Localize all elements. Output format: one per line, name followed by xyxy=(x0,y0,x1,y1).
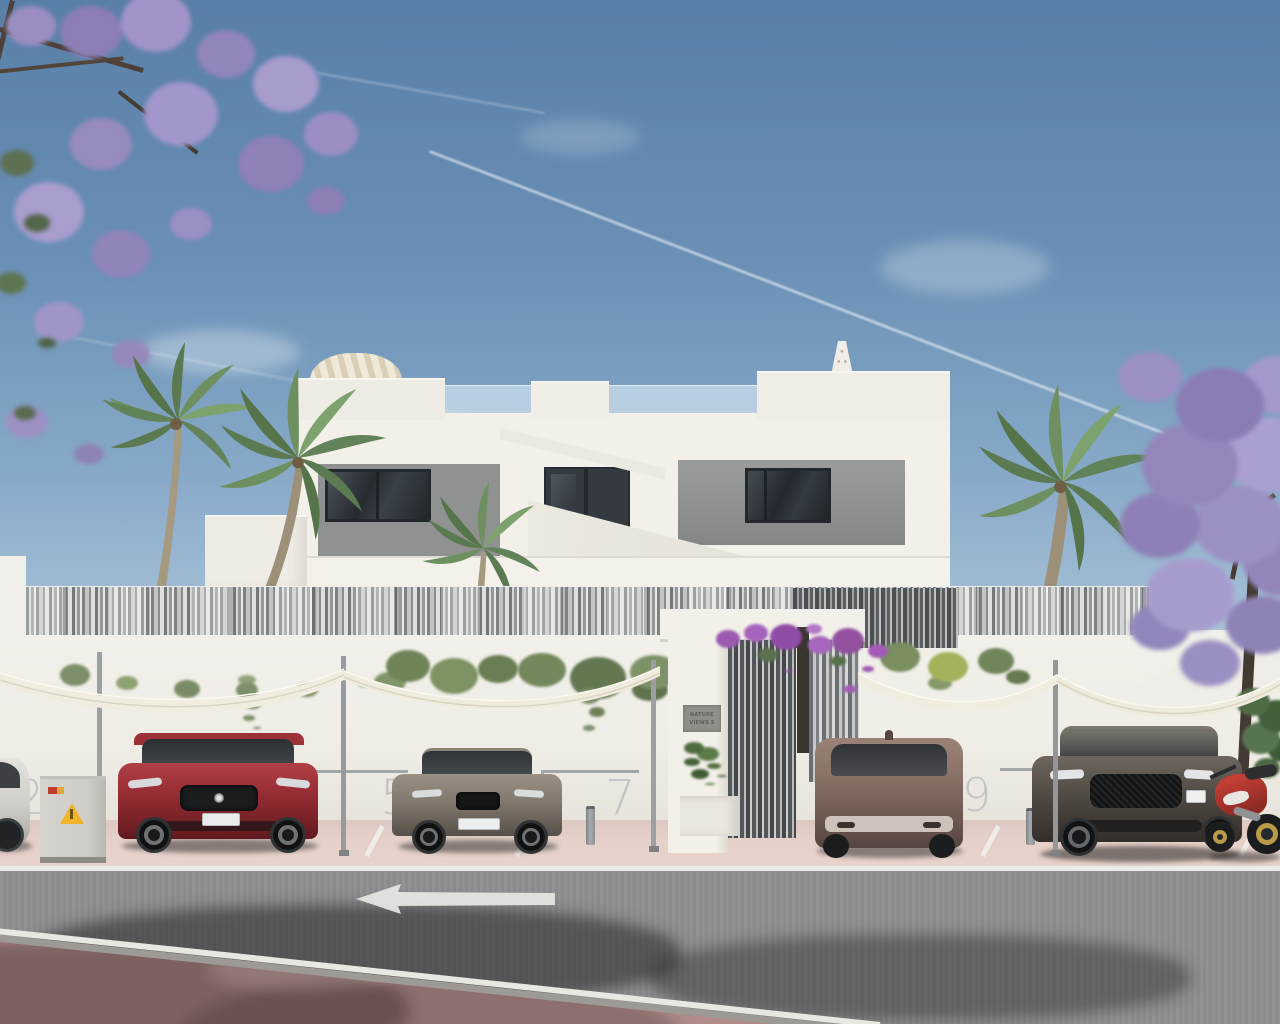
entrance-sign-plate: NATURE VIEWS 5 xyxy=(683,705,721,732)
roof-parapet xyxy=(297,378,445,420)
license-plate xyxy=(202,813,240,826)
entrance-gate-slats xyxy=(728,640,796,838)
trailing-vine xyxy=(236,682,258,698)
car-grille xyxy=(1090,774,1182,808)
shrubs-right-of-gate xyxy=(880,642,920,672)
motorcycle xyxy=(1205,752,1280,866)
moto-tail xyxy=(1244,763,1278,780)
car-wheel xyxy=(514,820,548,854)
garage-block-left xyxy=(205,515,307,597)
car-wheel xyxy=(1060,818,1098,856)
window-mullion xyxy=(376,472,379,519)
license-plate xyxy=(458,818,500,830)
car-wheel xyxy=(136,817,172,853)
window-upper-left xyxy=(325,469,431,522)
car-sedan xyxy=(392,748,564,856)
glass-roof-railing xyxy=(609,385,757,416)
shrubs-on-wall xyxy=(60,664,90,686)
shrub-mound xyxy=(386,650,430,682)
glass-roof-railing xyxy=(445,385,531,416)
exhaust xyxy=(837,822,855,828)
suv-rear-view xyxy=(815,722,965,860)
utility-box xyxy=(40,776,106,863)
window-upper-right xyxy=(745,468,831,523)
tree-shadow-on-road xyxy=(30,905,680,1005)
jacaranda-blossoms-left xyxy=(6,6,56,46)
window-mullion xyxy=(764,471,767,520)
entrance-dark-post xyxy=(797,627,809,753)
roof-antenna xyxy=(885,730,893,740)
moto-front-wheel xyxy=(1205,822,1235,852)
car-headlight xyxy=(1050,769,1084,780)
render-scene: 2 5 7 9 NATURE VIEWS 5 xyxy=(0,0,1280,1024)
rear-window xyxy=(831,744,947,776)
car-wheel xyxy=(270,817,306,853)
bougainvillea xyxy=(716,630,740,648)
cloud xyxy=(520,120,640,154)
car-wheel xyxy=(412,820,446,854)
brand-star-icon xyxy=(214,793,224,803)
car-grille xyxy=(456,792,500,810)
utility-box-label xyxy=(48,787,64,794)
bay-number-7: 7 xyxy=(605,770,636,826)
warning-triangle-mark xyxy=(70,809,73,819)
bollard xyxy=(586,806,595,845)
cloud xyxy=(140,330,300,374)
cloud xyxy=(880,240,1050,295)
jacaranda-blossoms-right xyxy=(1118,352,1182,402)
car-white-partial xyxy=(0,744,34,854)
entrance-sign-line1: NATURE xyxy=(683,711,721,719)
roof-parapet xyxy=(757,371,950,420)
entrance-planter xyxy=(680,796,738,836)
bay-number-9: 9 xyxy=(962,768,991,822)
car-red-suv xyxy=(118,733,320,857)
entrance-plant xyxy=(684,742,704,754)
jacaranda-leaves-left xyxy=(0,150,34,176)
entrance-sign-line2: VIEWS 5 xyxy=(683,719,721,727)
trailing-vine xyxy=(578,688,600,704)
license-plate xyxy=(1186,790,1206,803)
exhaust xyxy=(923,822,941,828)
roof-parapet xyxy=(531,381,609,420)
car-wheel xyxy=(823,834,849,858)
boundary-wall-pillar-left xyxy=(0,556,26,646)
slat-fence xyxy=(26,586,1160,635)
tree-shadow-on-road xyxy=(650,935,1190,1020)
bush-far-right xyxy=(1236,688,1270,716)
shrub-mound xyxy=(518,653,566,687)
car-wheel xyxy=(929,834,955,858)
